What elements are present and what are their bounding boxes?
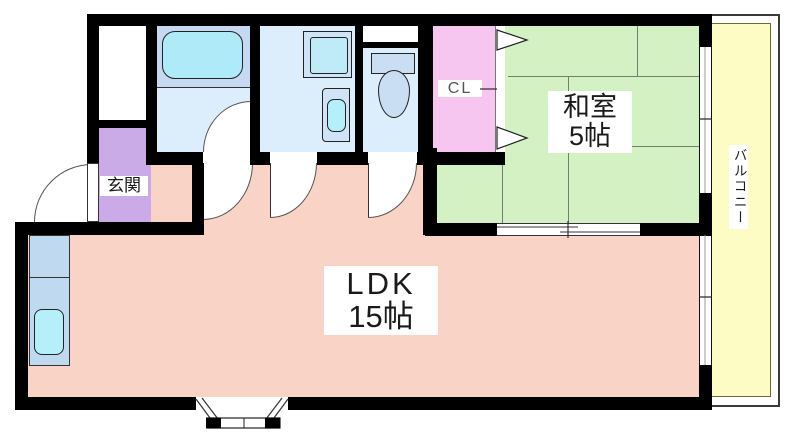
- closet-door-arrow-bottom: [497, 127, 527, 149]
- linework-overlay: [0, 0, 800, 443]
- floor-plan: 玄関 CL 和室 5帖 LDK 15帖 バルコニー: [0, 0, 800, 443]
- closet-door-arrow-top: [497, 30, 527, 50]
- bay-window: [196, 398, 288, 429]
